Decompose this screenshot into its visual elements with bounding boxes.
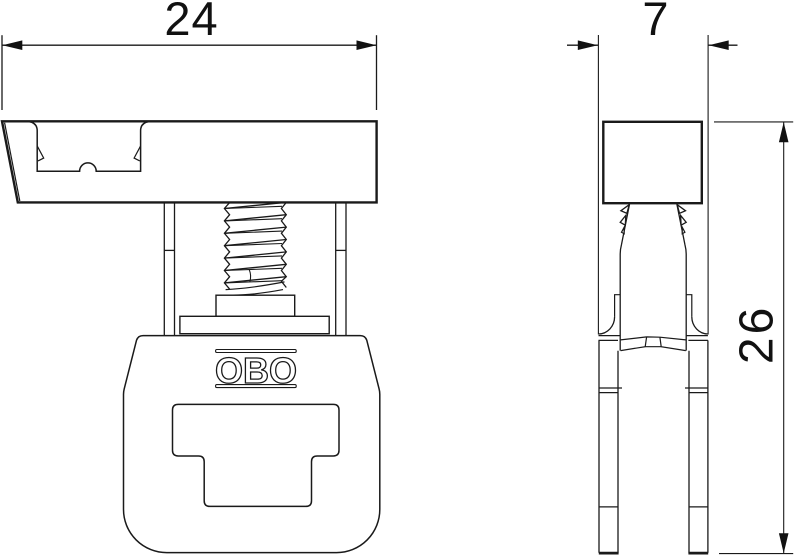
svg-text:7: 7 [642,0,668,45]
svg-text:24: 24 [164,0,218,45]
svg-text:26: 26 [730,305,783,364]
